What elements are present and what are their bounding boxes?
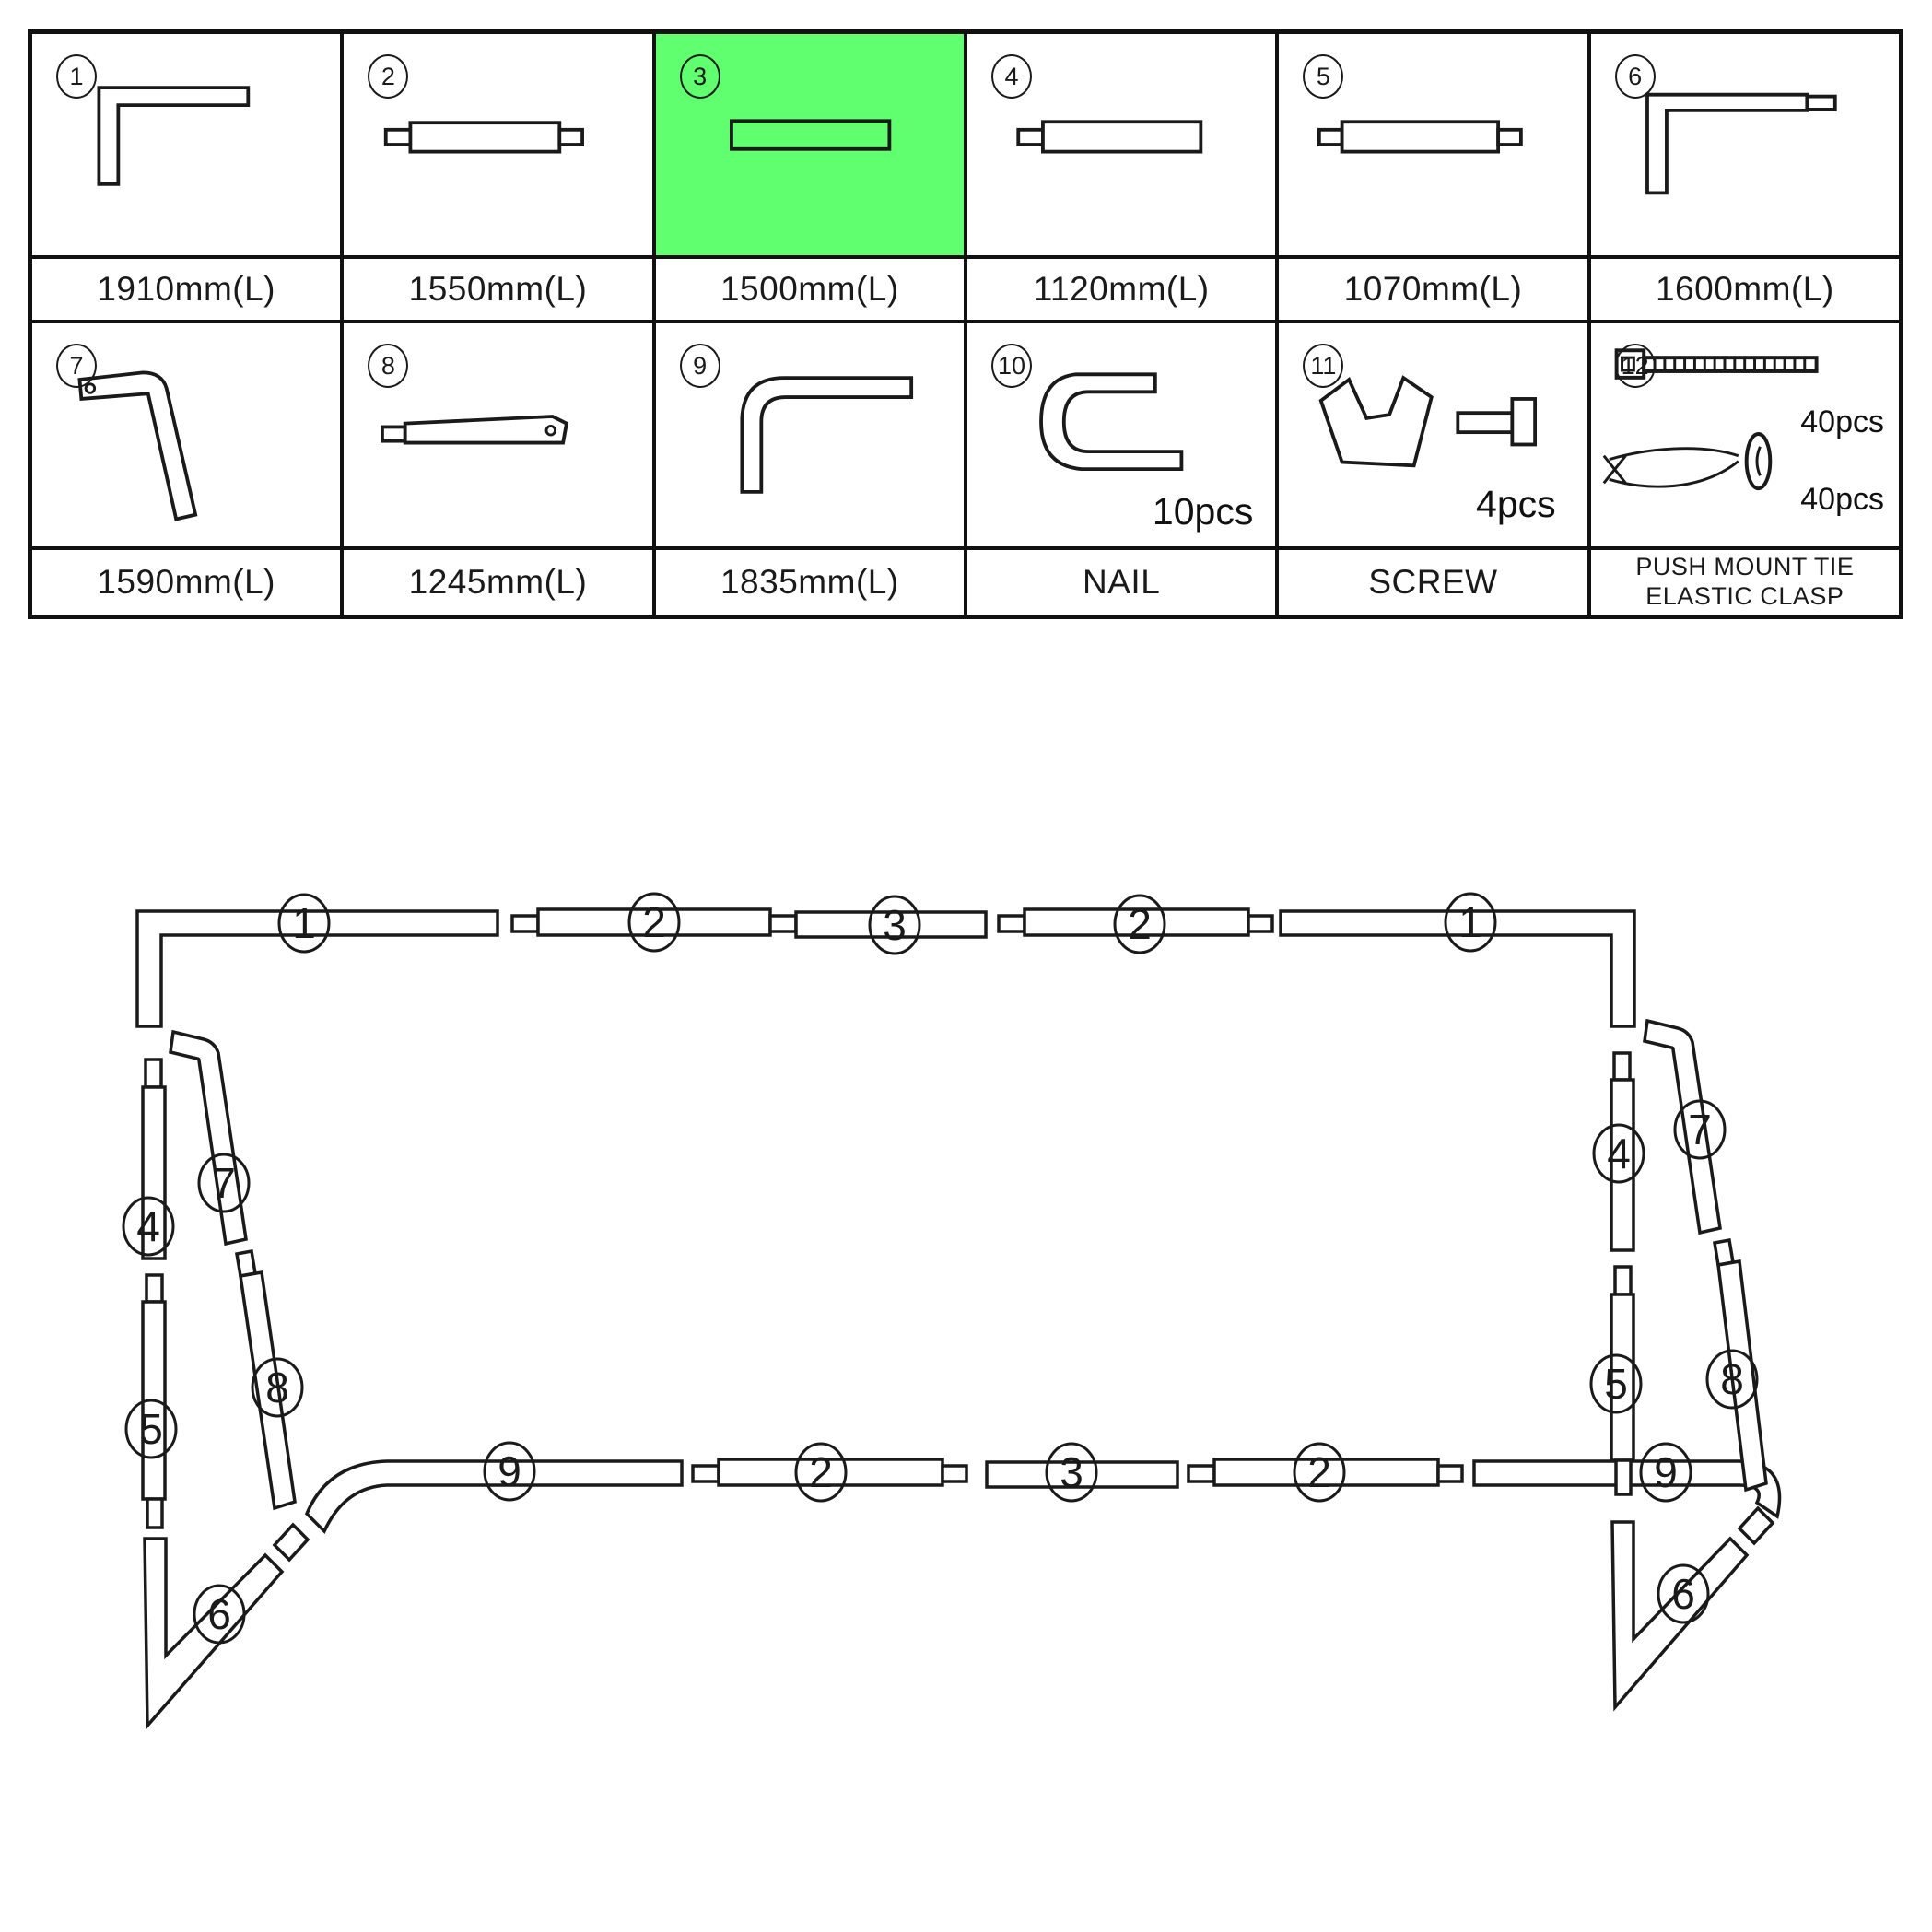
- tube-6-right-connector: [1739, 1508, 1773, 1543]
- tube-2-connector: [1438, 1466, 1462, 1481]
- tube-4-left-connector: [146, 1060, 161, 1087]
- diagram-part-badge-number: 9: [1654, 1448, 1678, 1496]
- diagram-part-badge-number: 2: [642, 898, 666, 946]
- tube-5-left-end-connector: [147, 1499, 162, 1528]
- diagram-part-badge-number: 5: [1604, 1360, 1628, 1408]
- tube-2-connector: [943, 1466, 966, 1481]
- part-9-number-badge: 9: [680, 344, 720, 388]
- diagram-part-badge-number: 1: [1458, 898, 1482, 946]
- tube-8-left-connector: [237, 1251, 255, 1276]
- tube-2-connector: [693, 1466, 719, 1481]
- diagram-part-badge-number: 7: [212, 1159, 236, 1207]
- top-left-elbow-tube-1: [137, 911, 498, 1026]
- diagram-part-badge-number: 3: [1060, 1448, 1083, 1496]
- tube-5-right-connector: [1615, 1267, 1631, 1294]
- diagram-part-badge-number: 8: [1720, 1355, 1744, 1403]
- part-11-quantity: 4pcs: [1476, 483, 1556, 526]
- diagram-part-badge-number: 4: [136, 1202, 160, 1250]
- tube-8-right-connector: [1715, 1240, 1733, 1265]
- diagram-part-badge-number: 2: [1307, 1448, 1331, 1496]
- part-3-number-badge: 3: [680, 54, 720, 99]
- diagram-part-badge-number: 6: [1671, 1570, 1695, 1618]
- diagram-part-badge-number: 4: [1607, 1130, 1631, 1177]
- tube-2-connector: [770, 916, 796, 931]
- tube-2-connector: [1188, 1466, 1214, 1481]
- tube-2-connector: [999, 916, 1025, 931]
- diagram-part-badge-number: 3: [883, 901, 907, 949]
- part-6-number-badge: 6: [1615, 54, 1656, 99]
- bent-tube-7-left: [170, 1032, 246, 1244]
- tube-2-connector: [512, 916, 538, 931]
- part-10-quantity: 10pcs: [1153, 490, 1253, 533]
- top-right-elbow-tube-1: [1281, 911, 1634, 1026]
- assembly-diagram: 12321745874589232966: [0, 0, 1932, 1932]
- part-1-number-badge: 1: [56, 54, 97, 99]
- part-12-tie-quantity: 40pcs: [1800, 404, 1884, 440]
- tube-5-right-end-connector: [1616, 1460, 1631, 1494]
- diagram-part-badge-number: 9: [498, 1447, 521, 1495]
- part-7-number-badge: 7: [56, 344, 97, 388]
- diagram-part-badge-number: 1: [292, 899, 316, 947]
- part-12-clasp-quantity: 40pcs: [1800, 482, 1884, 518]
- part-12-number-badge: 12: [1615, 344, 1656, 388]
- part-4-number-badge: 4: [991, 54, 1032, 99]
- tube-2-connector: [1248, 916, 1272, 931]
- diagram-part-badge-number: 2: [809, 1448, 833, 1496]
- diagram-part-badge-number: 5: [139, 1405, 163, 1453]
- tube-5-left-connector: [146, 1275, 162, 1302]
- tube-6-left-connector: [275, 1525, 308, 1560]
- diagram-part-badge-number: 7: [1688, 1106, 1712, 1153]
- diagram-part-badge-number: 6: [207, 1590, 231, 1638]
- tube-4-right-connector: [1614, 1053, 1630, 1080]
- part-10-number-badge: 10: [991, 344, 1032, 388]
- diagram-part-badge-number: 2: [1128, 900, 1152, 948]
- diagram-part-badge-number: 8: [265, 1364, 289, 1411]
- bottom-left-elbow-tube-9: [307, 1461, 682, 1531]
- diagram-badge-layer: 12321745874589232966: [123, 894, 1757, 1643]
